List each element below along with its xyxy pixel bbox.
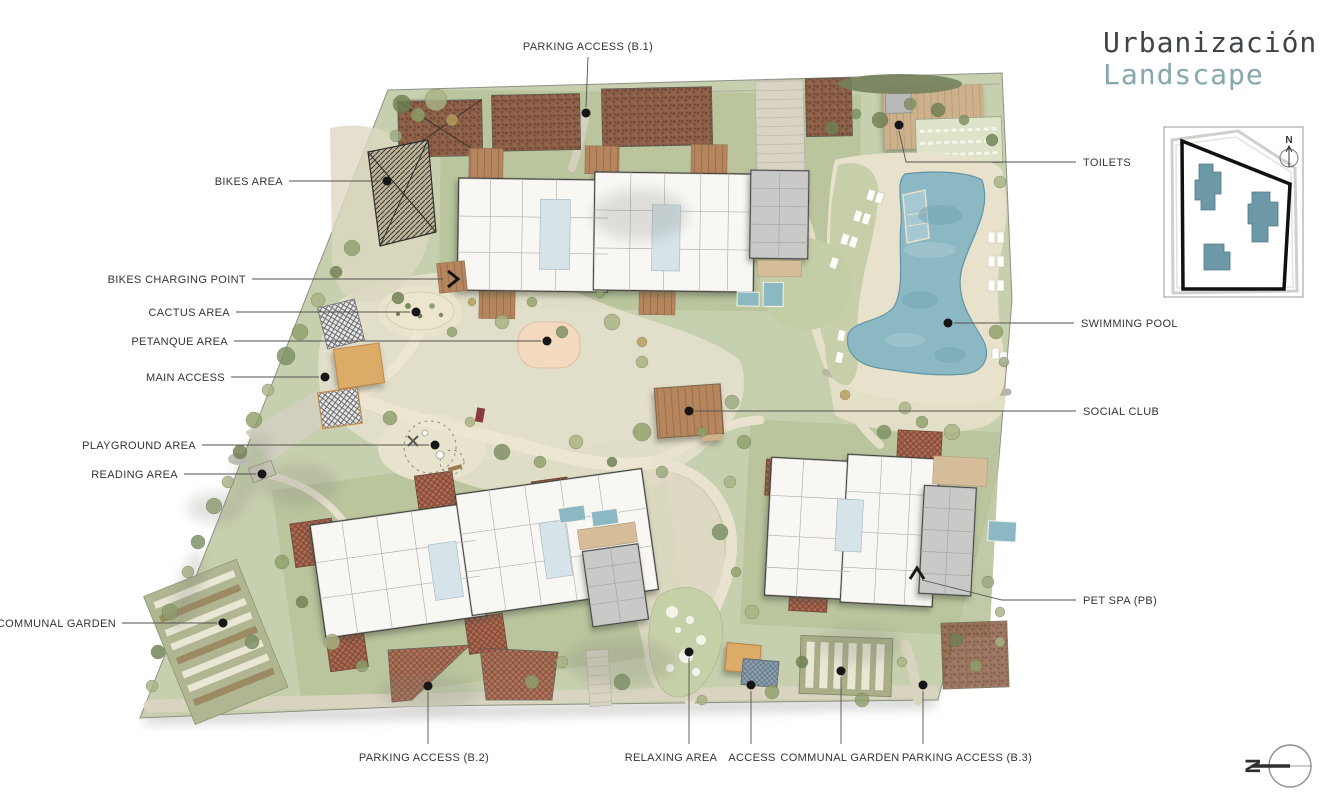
svg-text:N: N bbox=[1240, 758, 1263, 773]
site-plan: PARKING ACCESS (B.1) BIKES AREA BIKES CH… bbox=[0, 0, 1320, 800]
label-communal-garden-bottom: COMMUNAL GARDEN bbox=[780, 752, 899, 764]
hedge bbox=[838, 74, 962, 94]
label-communal-garden-left: COMMUNAL GARDEN bbox=[0, 618, 116, 630]
allotment-plot bbox=[941, 621, 1009, 689]
label-access: ACCESS bbox=[728, 752, 775, 764]
building-2-roof bbox=[582, 544, 648, 627]
bikes-area bbox=[368, 140, 436, 246]
label-swimming-pool: SWIMMING POOL bbox=[1081, 318, 1178, 330]
label-toilets: TOILETS bbox=[1083, 157, 1131, 169]
sheet-subtitle: Landscape bbox=[1103, 58, 1264, 91]
label-pet-spa: PET SPA (PB) bbox=[1083, 595, 1157, 607]
label-main-access: MAIN ACCESS bbox=[146, 372, 225, 384]
bikes-charging-point bbox=[437, 261, 468, 294]
label-parking-access-b1: PARKING ACCESS (B.1) bbox=[523, 41, 653, 53]
label-cactus-area: CACTUS AREA bbox=[149, 307, 231, 319]
label-bikes-charging-point: BIKES CHARGING POINT bbox=[108, 274, 246, 286]
label-bikes-area: BIKES AREA bbox=[215, 176, 284, 188]
svg-text:N: N bbox=[1285, 135, 1292, 146]
label-petanque-area: PETANQUE AREA bbox=[131, 336, 228, 348]
label-parking-access-b2: PARKING ACCESS (B.2) bbox=[359, 752, 489, 764]
label-relaxing-area: RELAXING AREA bbox=[625, 752, 718, 764]
label-playground-area: PLAYGROUND AREA bbox=[82, 440, 196, 452]
title-block: Urbanización Landscape bbox=[1103, 26, 1317, 91]
building-3-roof bbox=[919, 485, 977, 596]
central-walkway bbox=[755, 80, 805, 173]
drawing-sheet: PARKING ACCESS (B.1) BIKES AREA BIKES CH… bbox=[0, 0, 1320, 800]
building-1-roof bbox=[750, 170, 809, 259]
compass-icon: N bbox=[1240, 745, 1312, 787]
label-reading-area: READING AREA bbox=[91, 469, 178, 481]
key-plan: N bbox=[1164, 127, 1303, 297]
sheet-title: Urbanización bbox=[1103, 26, 1317, 59]
label-parking-access-b3: PARKING ACCESS (B.3) bbox=[902, 752, 1032, 764]
label-social-club: SOCIAL CLUB bbox=[1083, 406, 1159, 418]
